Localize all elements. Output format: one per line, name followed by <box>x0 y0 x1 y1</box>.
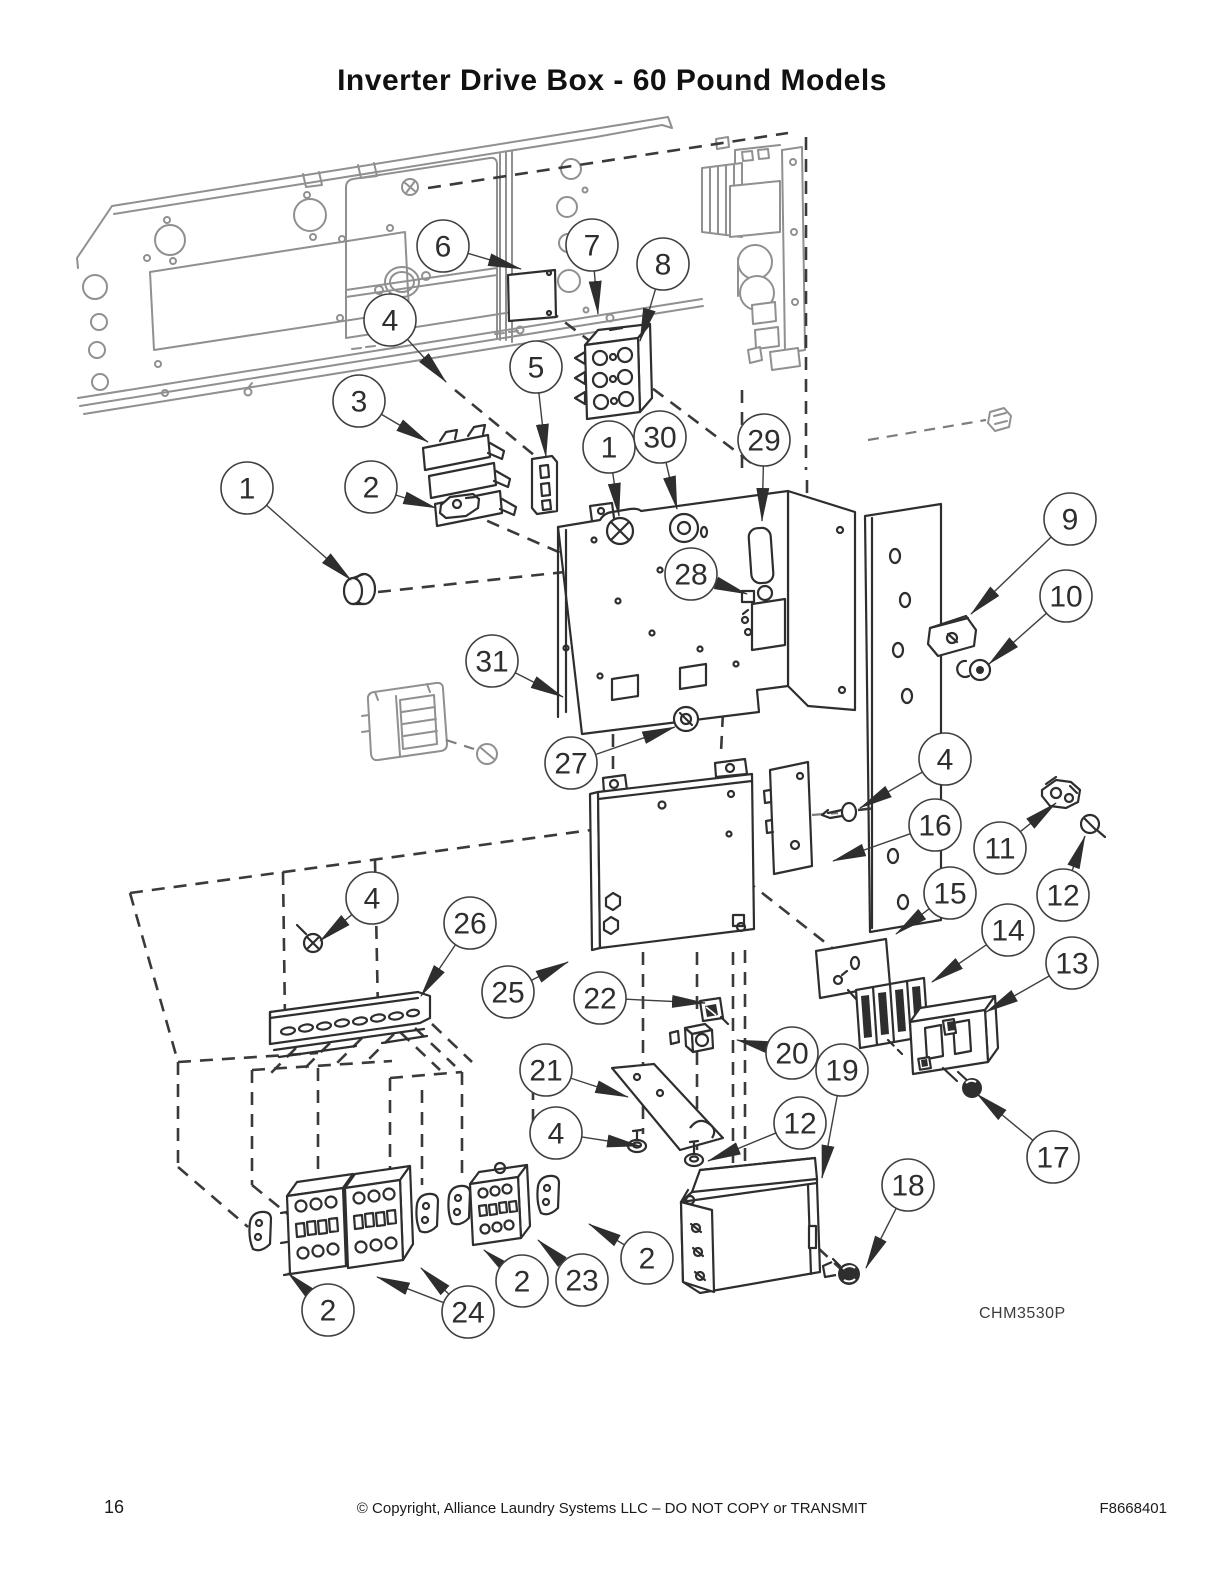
callout-number-18: 18 <box>891 1170 924 1203</box>
callout-leader-23 <box>538 1240 563 1263</box>
callout-number-21: 21 <box>529 1055 562 1088</box>
callout-number-12: 12 <box>783 1108 816 1141</box>
callout-number-1: 1 <box>601 432 618 465</box>
callout-leader-1 <box>266 505 351 580</box>
callout-12: 12 <box>1037 836 1089 921</box>
screw-17 <box>958 1072 982 1098</box>
callout-number-13: 13 <box>1055 948 1088 981</box>
din-rail-5 <box>532 456 557 514</box>
cover-plate-6 <box>508 270 556 321</box>
exploded-parts-diagram: 6784531302912928103127416111512141342625… <box>0 0 1224 1584</box>
callout-10: 10 <box>989 570 1092 664</box>
callout-leader-31 <box>515 673 563 697</box>
callout-20: 20 <box>737 1027 818 1079</box>
callout-number-25: 25 <box>491 977 524 1010</box>
side-panel-right <box>865 504 941 932</box>
callout-number-6: 6 <box>435 231 452 264</box>
inverter-drive-module-ghost <box>702 137 805 370</box>
grommet-27 <box>674 707 698 731</box>
callout-31: 31 <box>466 635 563 697</box>
callout-number-15: 15 <box>933 878 966 911</box>
callout-number-24: 24 <box>451 1297 484 1330</box>
callout-leader-24 <box>421 1268 449 1294</box>
callout-number-2: 2 <box>320 1295 337 1328</box>
callout-1: 1 <box>583 421 635 516</box>
callout-number-30: 30 <box>643 422 676 455</box>
callout-number-11: 11 <box>984 833 1015 866</box>
callout-number-1: 1 <box>239 473 256 506</box>
document-number: F8668401 <box>1099 1500 1167 1517</box>
callout-2: 2 <box>345 461 436 513</box>
callout-number-26: 26 <box>453 908 486 941</box>
callout-leader-18 <box>866 1208 896 1268</box>
callout-number-2: 2 <box>514 1266 531 1299</box>
callout-leader-2 <box>288 1273 309 1292</box>
retainer-clip-ghost <box>868 408 1011 440</box>
callout-leader-21 <box>571 1078 628 1097</box>
copyright-text: © Copyright, Alliance Laundry Systems LL… <box>0 1500 1224 1517</box>
callout-leader-6 <box>468 253 521 269</box>
callout-leader-2 <box>484 1250 502 1265</box>
callout-number-4: 4 <box>382 305 399 338</box>
callout-leader-22 <box>626 999 705 1003</box>
callout-21: 21 <box>520 1044 628 1097</box>
callout-number-31: 31 <box>475 646 508 679</box>
callout-leader-10 <box>989 613 1047 664</box>
callout-4: 4 <box>530 1107 640 1159</box>
callout-18: 18 <box>866 1159 934 1268</box>
figure-code: CHM3530P <box>979 1305 1066 1323</box>
callout-4: 4 <box>320 872 398 941</box>
callout-number-7: 7 <box>584 230 601 263</box>
clip-22 <box>700 998 728 1024</box>
callout-leader-30 <box>666 462 677 509</box>
callout-7: 7 <box>566 219 618 314</box>
callout-8: 8 <box>637 238 689 341</box>
bracket-plate-16 <box>764 762 812 874</box>
screw-4-left <box>297 925 322 952</box>
page-footer: 16 © Copyright, Alliance Laundry Systems… <box>0 1497 1224 1527</box>
callout-leader-5 <box>539 393 546 457</box>
callout-leader-26 <box>421 945 456 996</box>
callout-22: 22 <box>574 972 705 1024</box>
callout-number-29: 29 <box>747 425 780 458</box>
callout-number-2: 2 <box>639 1243 656 1276</box>
callout-2: 2 <box>288 1273 354 1336</box>
callout-11: 11 <box>974 803 1056 874</box>
callout-number-16: 16 <box>918 810 951 843</box>
callout-leader-4 <box>320 915 352 941</box>
callout-number-2: 2 <box>363 472 380 505</box>
drive-box-panel-31 <box>558 491 855 734</box>
callout-leader-11 <box>1020 803 1056 832</box>
square-nut-20 <box>670 1024 713 1052</box>
callout-1: 1 <box>221 462 351 580</box>
screw-18 <box>823 1259 860 1285</box>
manual-page: Inverter Drive Box - 60 Pound Models <box>0 0 1224 1584</box>
callout-number-9: 9 <box>1062 504 1079 537</box>
callout-leader-2 <box>589 1224 625 1245</box>
callout-leader-7 <box>594 271 598 314</box>
callout-leader-19 <box>822 1096 837 1178</box>
callout-number-23: 23 <box>565 1265 598 1298</box>
callout-leader-3 <box>381 414 428 442</box>
callout-number-3: 3 <box>351 386 368 419</box>
callout-layer: 6784531302912928103127416111512141342625… <box>221 219 1098 1338</box>
callout-number-4: 4 <box>364 883 381 916</box>
callout-5: 5 <box>510 341 562 457</box>
callout-leader-13 <box>986 976 1049 1012</box>
callout-number-28: 28 <box>674 559 707 592</box>
din-rail-26 <box>270 992 430 1057</box>
callout-number-8: 8 <box>655 249 672 282</box>
callout-2: 2 <box>484 1250 548 1307</box>
callout-25: 25 <box>482 962 568 1018</box>
callout-4: 4 <box>364 294 446 382</box>
callout-number-27: 27 <box>554 748 587 781</box>
callout-number-20: 20 <box>775 1038 808 1071</box>
callout-12: 12 <box>708 1097 826 1161</box>
callout-number-5: 5 <box>528 352 545 385</box>
callout-24: 24 <box>377 1268 494 1338</box>
callout-leader-14 <box>932 945 987 982</box>
control-cover-19 <box>681 1158 820 1293</box>
callout-number-4: 4 <box>548 1118 565 1151</box>
callout-leader-12 <box>1072 836 1085 871</box>
bracket-21 <box>612 1064 723 1150</box>
callout-leader-25 <box>531 962 568 980</box>
screw-12-right <box>1081 815 1105 837</box>
callout-number-17: 17 <box>1036 1142 1069 1175</box>
callout-leader-20 <box>737 1040 767 1047</box>
callout-leader-9 <box>971 537 1051 614</box>
hinge-bracket-11 <box>1042 777 1080 808</box>
terminal-block-13 <box>910 996 998 1081</box>
callout-23: 23 <box>538 1240 608 1306</box>
screw-4-right <box>812 803 876 821</box>
callout-leader-17 <box>977 1094 1033 1140</box>
callout-number-14: 14 <box>991 915 1024 948</box>
callout-number-4: 4 <box>937 744 954 777</box>
callout-17: 17 <box>977 1094 1079 1183</box>
callout-number-12: 12 <box>1046 880 1079 913</box>
callout-number-19: 19 <box>825 1055 858 1088</box>
relay-module-ghost <box>362 683 497 764</box>
callout-number-22: 22 <box>583 983 616 1016</box>
callout-3: 3 <box>333 375 428 442</box>
callout-number-10: 10 <box>1049 581 1082 614</box>
mounting-plate-25 <box>590 759 754 950</box>
callout-30: 30 <box>634 411 686 509</box>
